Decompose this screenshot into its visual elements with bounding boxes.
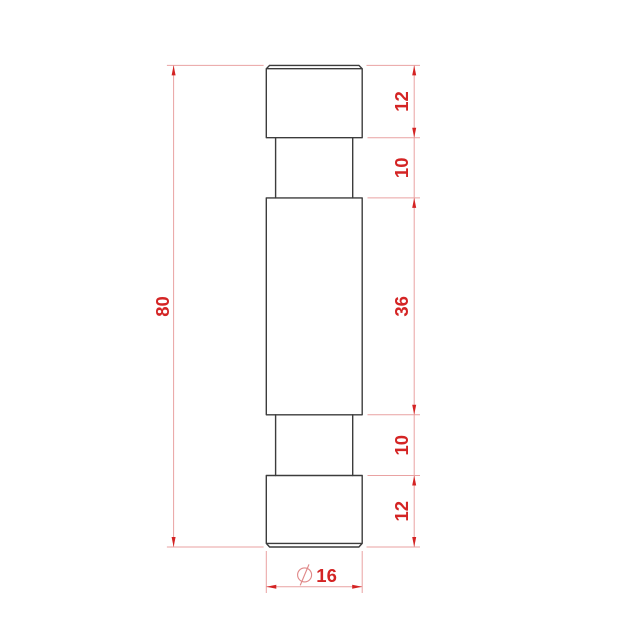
svg-text:12: 12 [391,91,412,112]
svg-text:10: 10 [391,435,412,456]
svg-text:10: 10 [391,158,412,179]
svg-text:36: 36 [391,296,412,317]
svg-text:12: 12 [391,501,412,522]
svg-text:80: 80 [152,296,173,317]
svg-text:16: 16 [316,565,337,586]
